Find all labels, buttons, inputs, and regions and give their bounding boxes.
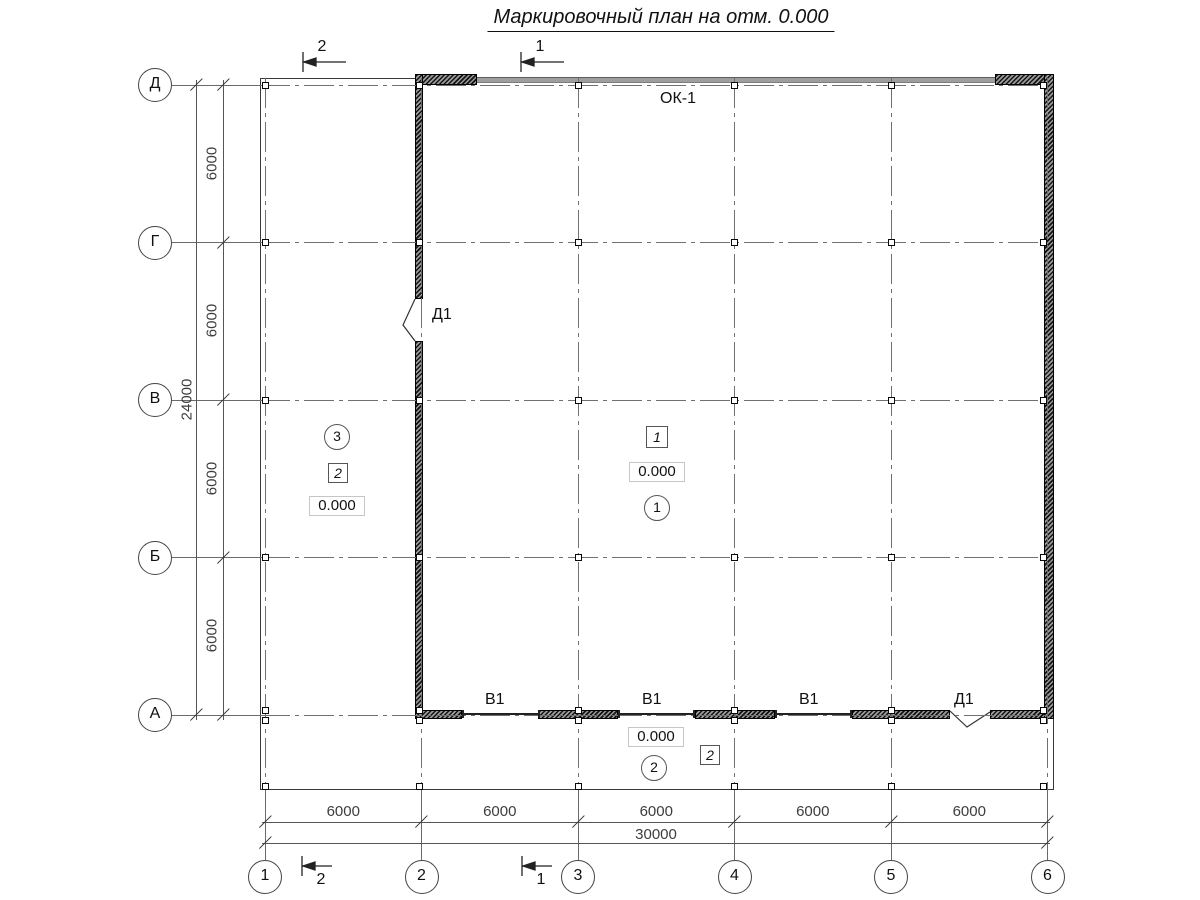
axis-bubble-row-Б: Б — [138, 541, 172, 575]
dim-value-col-2: 6000 — [626, 803, 686, 820]
column-marker — [888, 82, 895, 89]
column-marker — [731, 397, 738, 404]
column-marker — [1040, 783, 1047, 790]
dim-value-row-1: 6000 — [204, 291, 221, 351]
dim-value-row-0: 6000 — [204, 133, 221, 193]
dim-line-left-total — [196, 80, 197, 720]
column-marker — [731, 554, 738, 561]
dim-value-col-1: 6000 — [470, 803, 530, 820]
door-left-label: Д1 — [432, 306, 452, 324]
axis-stem-col-4 — [734, 790, 735, 860]
column-marker — [416, 82, 423, 89]
column-marker — [1040, 82, 1047, 89]
dim-value-row-total: 24000 — [179, 365, 196, 435]
axis-bubble-col-5: 5 — [874, 860, 908, 894]
axis-stem-col-1 — [265, 790, 266, 860]
column-marker — [575, 707, 582, 714]
gate-jamb — [618, 710, 620, 718]
column-marker — [731, 239, 738, 246]
column-marker — [731, 82, 738, 89]
column-marker — [1040, 554, 1047, 561]
column-marker — [575, 554, 582, 561]
axis-bubble-row-В: В — [138, 383, 172, 417]
grid-line-row-Б — [260, 557, 1048, 558]
dim-value-col-total: 30000 — [621, 826, 691, 843]
bay-type-box: 2 — [328, 463, 348, 483]
column-marker — [416, 554, 423, 561]
axis-stem-col-3 — [578, 790, 579, 860]
window-mark-label: ОК-1 — [660, 90, 696, 108]
dim-value-col-4: 6000 — [939, 803, 999, 820]
gate-leaf-1 — [464, 713, 538, 715]
gate-jamb — [850, 710, 852, 718]
door-bottom-label: Д1 — [954, 691, 974, 709]
column-marker — [575, 82, 582, 89]
drawing-sheet: Маркировочный план на отм. 0.000 ОК-1 Д1… — [0, 0, 1200, 900]
dim-line-bottom-segments — [262, 822, 1050, 823]
axis-stem-col-5 — [891, 790, 892, 860]
gate-leaf-2 — [620, 713, 693, 715]
grid-line-col-5 — [891, 78, 892, 790]
grid-line-col-3 — [578, 78, 579, 790]
section-top-1-label: 1 — [532, 38, 548, 56]
gate-label-2: В1 — [642, 691, 662, 709]
column-marker — [575, 397, 582, 404]
axis-stem-col-2 — [421, 790, 422, 860]
strip-type-box: 2 — [700, 745, 720, 765]
axis-bubble-row-Г: Г — [138, 226, 172, 260]
gate-leaf-3 — [777, 713, 850, 715]
dim-value-col-0: 6000 — [313, 803, 373, 820]
dim-value-row-3: 6000 — [204, 606, 221, 666]
gate-jamb — [462, 710, 464, 718]
column-marker — [1040, 397, 1047, 404]
gate-label-1: В1 — [485, 691, 505, 709]
axis-bubble-col-1: 1 — [248, 860, 282, 894]
axis-bubble-row-А: А — [138, 698, 172, 732]
gate-jamb — [775, 710, 777, 718]
column-marker — [262, 397, 269, 404]
dim-value-col-3: 6000 — [783, 803, 843, 820]
gate-label-3: В1 — [799, 691, 819, 709]
column-marker — [888, 239, 895, 246]
axis-bubble-row-Д: Д — [138, 68, 172, 102]
axis-bubble-col-6: 6 — [1031, 860, 1065, 894]
column-marker — [416, 707, 423, 714]
column-marker — [262, 554, 269, 561]
section-bottom-2-label: 2 — [313, 871, 329, 889]
column-marker — [262, 717, 269, 724]
axis-bubble-col-4: 4 — [718, 860, 752, 894]
column-marker — [575, 239, 582, 246]
section-bottom-1-label: 1 — [533, 871, 549, 889]
gate-jamb — [538, 710, 540, 718]
column-marker — [416, 397, 423, 404]
hall-type-box: 1 — [646, 426, 668, 448]
dim-line-bottom-total — [262, 843, 1050, 844]
column-marker — [416, 239, 423, 246]
grid-line-row-Г — [260, 242, 1048, 243]
column-marker — [262, 82, 269, 89]
axis-connector-row-А — [172, 715, 260, 716]
column-marker — [1040, 239, 1047, 246]
grid-line-col-2 — [421, 78, 422, 790]
column-marker — [416, 783, 423, 790]
column-marker — [731, 717, 738, 724]
grid-line-row-В — [260, 400, 1048, 401]
grid-line-col-4 — [734, 78, 735, 790]
axis-connector-row-Г — [172, 242, 260, 243]
hall-elevation: 0.000 — [629, 462, 685, 482]
column-marker — [888, 783, 895, 790]
column-marker — [888, 707, 895, 714]
bay-room-number: 3 — [324, 424, 350, 450]
strip-room-number: 2 — [641, 755, 667, 781]
column-marker — [888, 554, 895, 561]
column-marker — [575, 783, 582, 790]
bay-elevation: 0.000 — [309, 496, 365, 516]
gate-jamb — [693, 710, 695, 718]
column-marker — [262, 783, 269, 790]
grid-line-col-6 — [1047, 78, 1048, 790]
column-marker — [262, 239, 269, 246]
section-top-2-label: 2 — [314, 38, 330, 56]
column-marker — [888, 717, 895, 724]
axis-bubble-col-3: 3 — [561, 860, 595, 894]
hall-room-number: 1 — [644, 495, 670, 521]
axis-connector-row-Б — [172, 557, 260, 558]
axis-stem-col-6 — [1047, 790, 1048, 860]
axis-connector-row-Д — [172, 85, 260, 86]
column-marker — [262, 707, 269, 714]
strip-elevation: 0.000 — [628, 727, 684, 747]
column-marker — [575, 717, 582, 724]
grid-line-col-1 — [265, 78, 266, 790]
column-marker — [888, 397, 895, 404]
dim-value-row-2: 6000 — [204, 448, 221, 508]
column-marker — [1040, 717, 1047, 724]
grid-line-row-Д — [260, 85, 1048, 86]
column-marker — [731, 783, 738, 790]
column-marker — [731, 707, 738, 714]
column-marker — [1040, 707, 1047, 714]
wall-top-left-pier — [415, 74, 477, 85]
axis-bubble-col-2: 2 — [405, 860, 439, 894]
column-marker — [416, 717, 423, 724]
page-title: Маркировочный план на отм. 0.000 — [487, 6, 834, 32]
